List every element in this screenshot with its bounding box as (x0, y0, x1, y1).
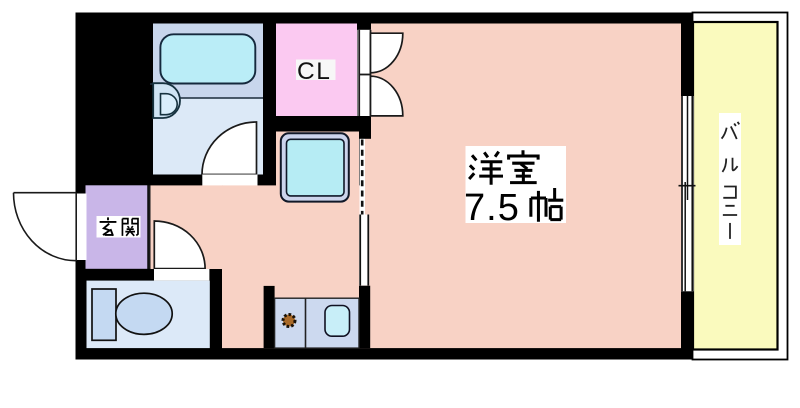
svg-text:7.5: 7.5 (464, 187, 520, 229)
svg-text:CL: CL (297, 58, 331, 85)
